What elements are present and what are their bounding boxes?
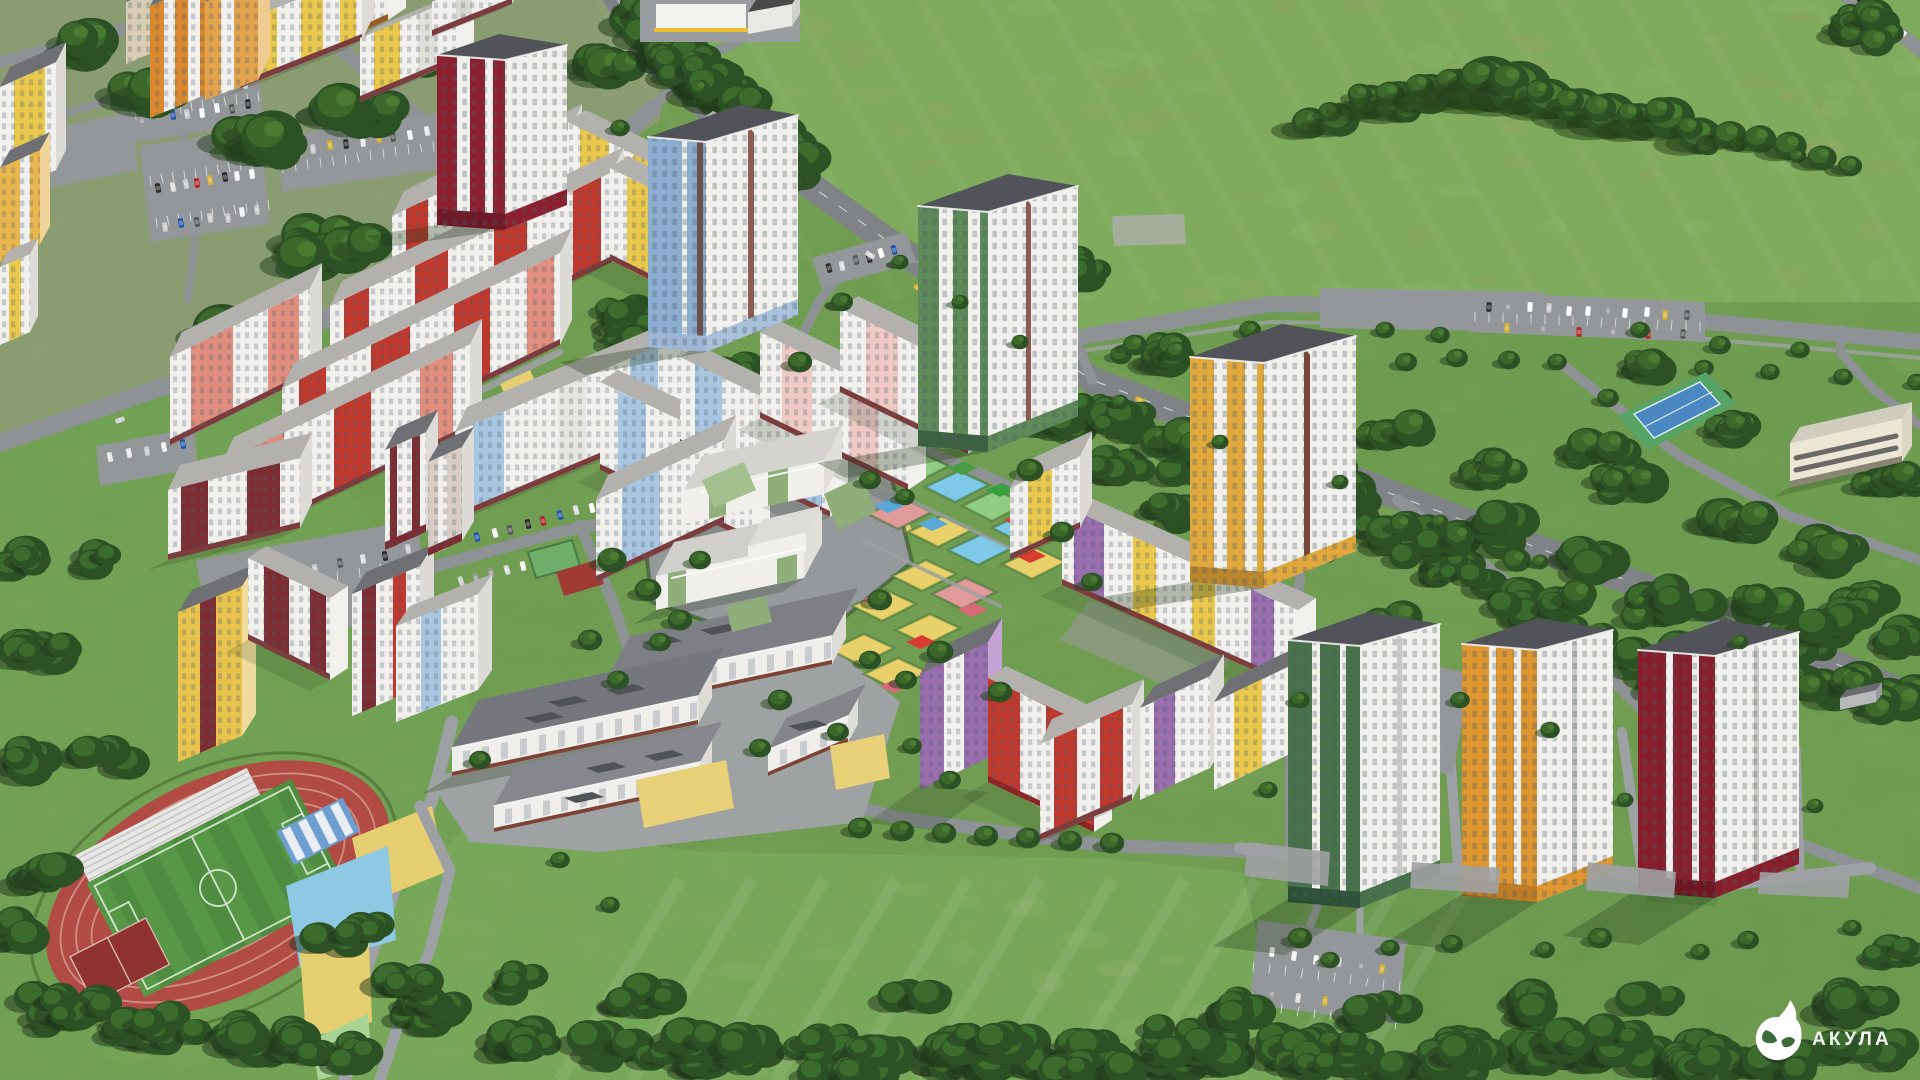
svg-text:АКУЛА: АКУЛА	[1812, 1029, 1892, 1050]
